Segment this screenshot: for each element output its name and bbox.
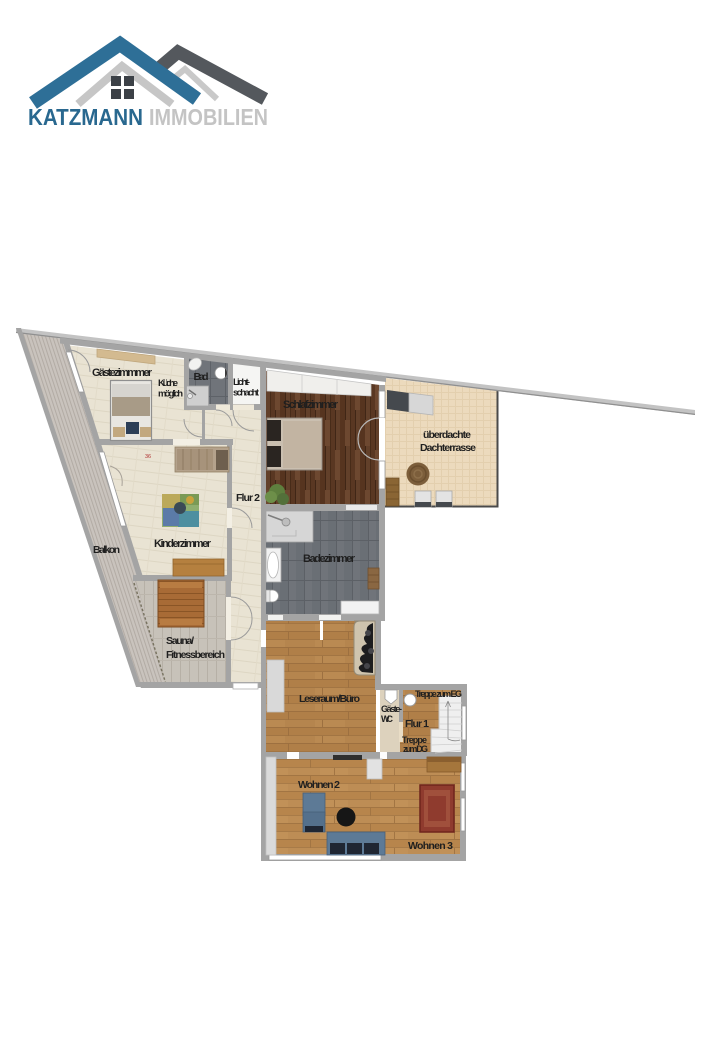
svg-text:IMMOBILIEN: IMMOBILIEN xyxy=(149,104,268,130)
svg-text:Treppe zum EG: Treppe zum EG xyxy=(415,689,462,699)
svg-text:Licht-: Licht- xyxy=(233,377,250,388)
svg-text:Leseraum/Büro: Leseraum/Büro xyxy=(299,693,360,705)
svg-text:zum DG: zum DG xyxy=(403,744,428,754)
svg-text:Gästezimmmer: Gästezimmmer xyxy=(92,367,153,379)
svg-text:Flur 1: Flur 1 xyxy=(405,718,429,730)
svg-text:36: 36 xyxy=(145,454,151,460)
svg-text:WC: WC xyxy=(381,714,394,724)
svg-text:Sauna/: Sauna/ xyxy=(166,635,194,647)
svg-text:Schlafzimmer: Schlafzimmer xyxy=(283,399,339,411)
svg-text:Dachterrasse: Dachterrasse xyxy=(420,442,476,454)
svg-text:Gäste-: Gäste- xyxy=(381,704,402,714)
svg-text:Küche: Küche xyxy=(158,378,178,389)
svg-text:Bad: Bad xyxy=(194,371,209,383)
svg-text:möglich: möglich xyxy=(158,389,183,400)
svg-text:Flur 2: Flur 2 xyxy=(236,492,260,504)
svg-text:Badezimmer: Badezimmer xyxy=(303,553,356,565)
svg-text:schacht: schacht xyxy=(233,388,260,399)
svg-text:Wohnen 2: Wohnen 2 xyxy=(298,779,340,791)
svg-text:Kinderzimmer: Kinderzimmer xyxy=(154,538,212,550)
svg-text:Fitnessbereich: Fitnessbereich xyxy=(166,649,225,661)
svg-text:KATZMANN: KATZMANN xyxy=(28,104,143,130)
svg-text:überdachte: überdachte xyxy=(423,429,471,441)
svg-text:Balkon: Balkon xyxy=(93,544,120,556)
svg-text:Wohnen 3: Wohnen 3 xyxy=(408,840,453,852)
